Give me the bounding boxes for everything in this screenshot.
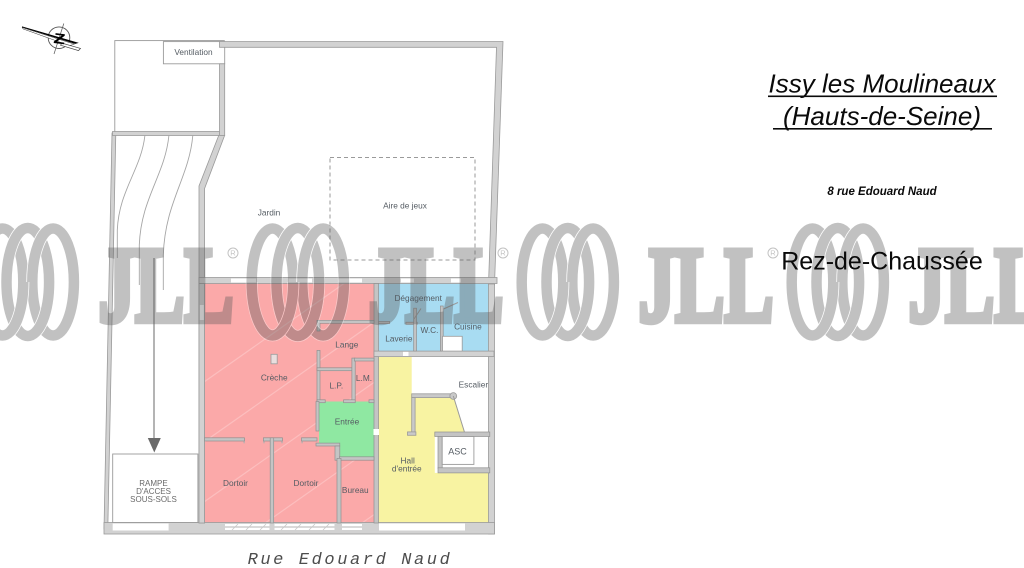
svg-text:W.C.: W.C. [421,325,439,335]
svg-text:Issy les Moulineaux: Issy les Moulineaux [769,69,997,99]
svg-text:Bureau: Bureau [342,485,369,495]
svg-text:Jardin: Jardin [258,208,281,218]
svg-text:SOUS-SOLS: SOUS-SOLS [130,495,177,504]
svg-text:Cuisine: Cuisine [454,321,482,331]
svg-text:Dortoir: Dortoir [294,478,319,488]
svg-text:L.M.: L.M. [356,373,372,383]
svg-text:Dortoir: Dortoir [223,478,248,488]
svg-text:Aire de jeux: Aire de jeux [383,201,428,211]
svg-text:d'entrée: d'entrée [392,464,422,474]
svg-text:8 rue Edouard Naud: 8 rue Edouard Naud [827,186,937,198]
svg-text:L.P.: L.P. [329,381,343,391]
svg-text:Laverie: Laverie [385,334,413,344]
svg-text:(Hauts-de-Seine): (Hauts-de-Seine) [783,101,981,131]
svg-text:Dégagement: Dégagement [394,293,442,303]
svg-text:Rue Edouard Naud: Rue Edouard Naud [248,551,453,568]
svg-text:Entrée: Entrée [335,417,360,427]
svg-text:Crèche: Crèche [261,373,288,383]
svg-text:Ventilation: Ventilation [174,47,213,57]
svg-text:Z: Z [53,30,66,48]
svg-text:Rez-de-Chaussée: Rez-de-Chaussée [781,248,983,276]
svg-text:Lange: Lange [335,340,358,350]
svg-text:Escalier: Escalier [459,380,489,390]
svg-text:ASC: ASC [448,447,467,457]
